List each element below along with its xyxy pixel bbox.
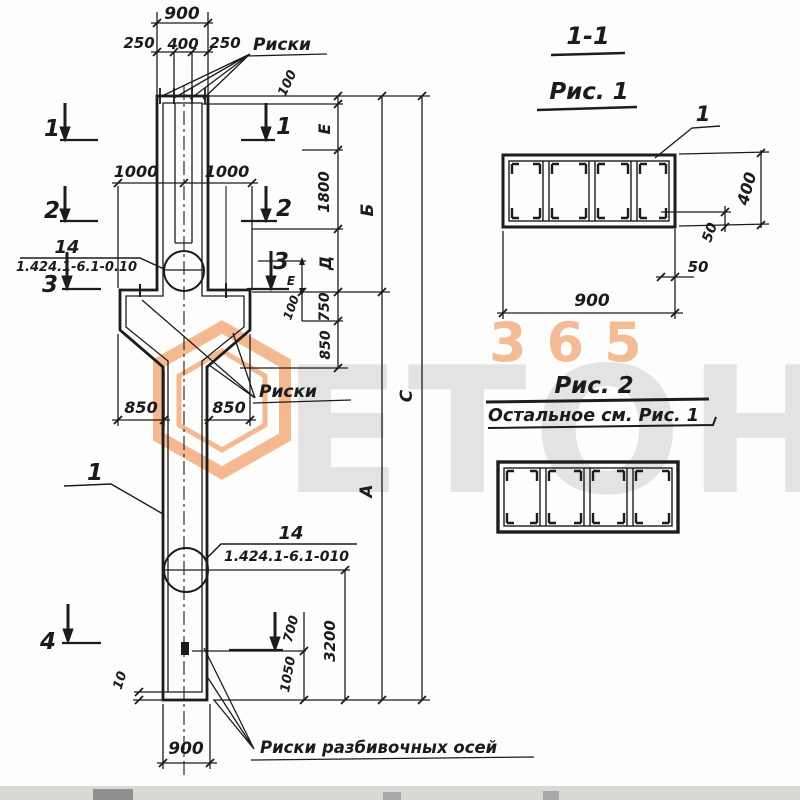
drawing-canvas: ЕТОН 365 — [0, 0, 800, 800]
label-riski-axes: Риски разбивочных осей — [260, 738, 498, 757]
dim-right-100: 100 — [275, 68, 300, 99]
label-fig1-bar: 1 — [696, 102, 711, 126]
bottom-band-mark-3 — [543, 791, 559, 800]
callout-top-item: 14 — [54, 237, 79, 258]
label-position-1: 1 — [87, 460, 103, 486]
dim-right-e: Е — [315, 123, 334, 134]
title-fig1: Рис. 1 — [549, 79, 628, 105]
dim-console-left: 1000 — [114, 162, 159, 181]
page-bottom-edge — [0, 786, 800, 800]
dim-bottom-1050: 1050 — [278, 655, 299, 693]
dim-fig1-cover-v: 50 — [699, 220, 721, 244]
dim-mark-e: Е — [287, 274, 296, 288]
dim-corbel-right: 850 — [212, 398, 245, 417]
dim-top-left: 250 — [123, 34, 154, 52]
title-fig2: Рис. 2 — [554, 373, 633, 399]
dim-right-750: 750 — [317, 292, 333, 321]
riski-top-leaders — [160, 54, 327, 99]
dim-bottom-overall: 900 — [168, 739, 204, 759]
dim-right-d: Д — [316, 256, 335, 271]
dim-fig1-width: 900 — [574, 291, 610, 311]
dim-bottom-700: 700 — [281, 614, 303, 644]
column-drawing: ЕТОН 365 — [0, 0, 800, 800]
note-fig2: Остальное см. Рис. 1 — [488, 406, 699, 426]
bottom-band-mark-1 — [93, 789, 133, 800]
dim-fig1-cover-h: 50 — [688, 258, 709, 276]
title-1-1-underline — [551, 53, 625, 55]
flag-4-left-arrow — [63, 629, 73, 643]
title-section-cut: 1-1 — [566, 22, 609, 50]
label-riski-console: Риски — [259, 382, 317, 402]
dim-fig1-height: 400 — [733, 170, 760, 208]
callout-bottom-item: 14 — [278, 523, 303, 544]
dim-right-b: Б — [358, 203, 378, 216]
position-1-leader — [64, 484, 163, 514]
marker-1-right: 1 — [276, 114, 292, 140]
marker-3-right: 3 — [273, 249, 289, 275]
watermark-number: 365 — [489, 311, 662, 374]
marker-2-right: 2 — [276, 196, 292, 222]
dim-right-1800: 1800 — [315, 171, 333, 213]
dim-console-right: 1000 — [205, 162, 250, 181]
dim-right-c: С — [397, 389, 417, 402]
dim-bottom-3200: 3200 — [321, 620, 339, 662]
marker-3-left: 3 — [42, 272, 58, 298]
marker-1-left: 1 — [44, 116, 60, 142]
bottom-riska-mark — [181, 642, 189, 655]
watermark-layer: ЕТОН 365 — [159, 311, 800, 534]
dim-mark-100: 100 — [280, 293, 302, 321]
dim-right-a: А — [357, 484, 377, 499]
dim-corbel-left: 850 — [124, 398, 157, 417]
dim-top-mid: 400 — [166, 35, 198, 53]
dim-top-right: 250 — [209, 34, 240, 52]
dim-top-overall: 900 — [164, 4, 200, 24]
figure-1-section — [497, 53, 769, 319]
callout-bottom-series: 1.424.1-6.1-010 — [224, 549, 349, 565]
marker-2-left: 2 — [44, 198, 60, 224]
dim-bottom-10: 10 — [111, 670, 131, 692]
fig1-dim-lines — [497, 150, 769, 319]
label-riski-top: Риски — [253, 35, 311, 55]
fig1-title-underline — [537, 107, 637, 110]
top-dim-lines — [151, 12, 213, 96]
callout-top-series: 1.424.1-6.1-0.10 — [16, 260, 137, 275]
fig1-dividers — [543, 161, 637, 221]
bottom-band-mark-2 — [383, 792, 401, 800]
dim-right-850: 850 — [318, 330, 334, 359]
marker-4-left: 4 — [39, 629, 56, 655]
